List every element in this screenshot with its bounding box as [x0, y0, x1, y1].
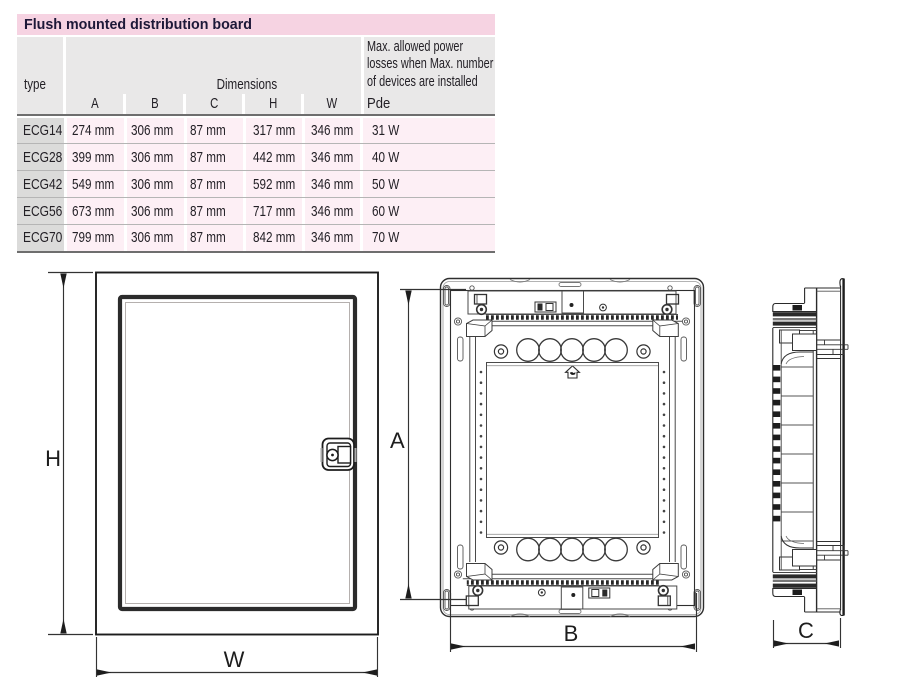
svg-text:B: B: [564, 621, 579, 646]
svg-text:W: W: [224, 647, 245, 672]
svg-text:A: A: [390, 428, 405, 453]
svg-text:H: H: [45, 446, 61, 471]
svg-text:C: C: [798, 618, 814, 643]
